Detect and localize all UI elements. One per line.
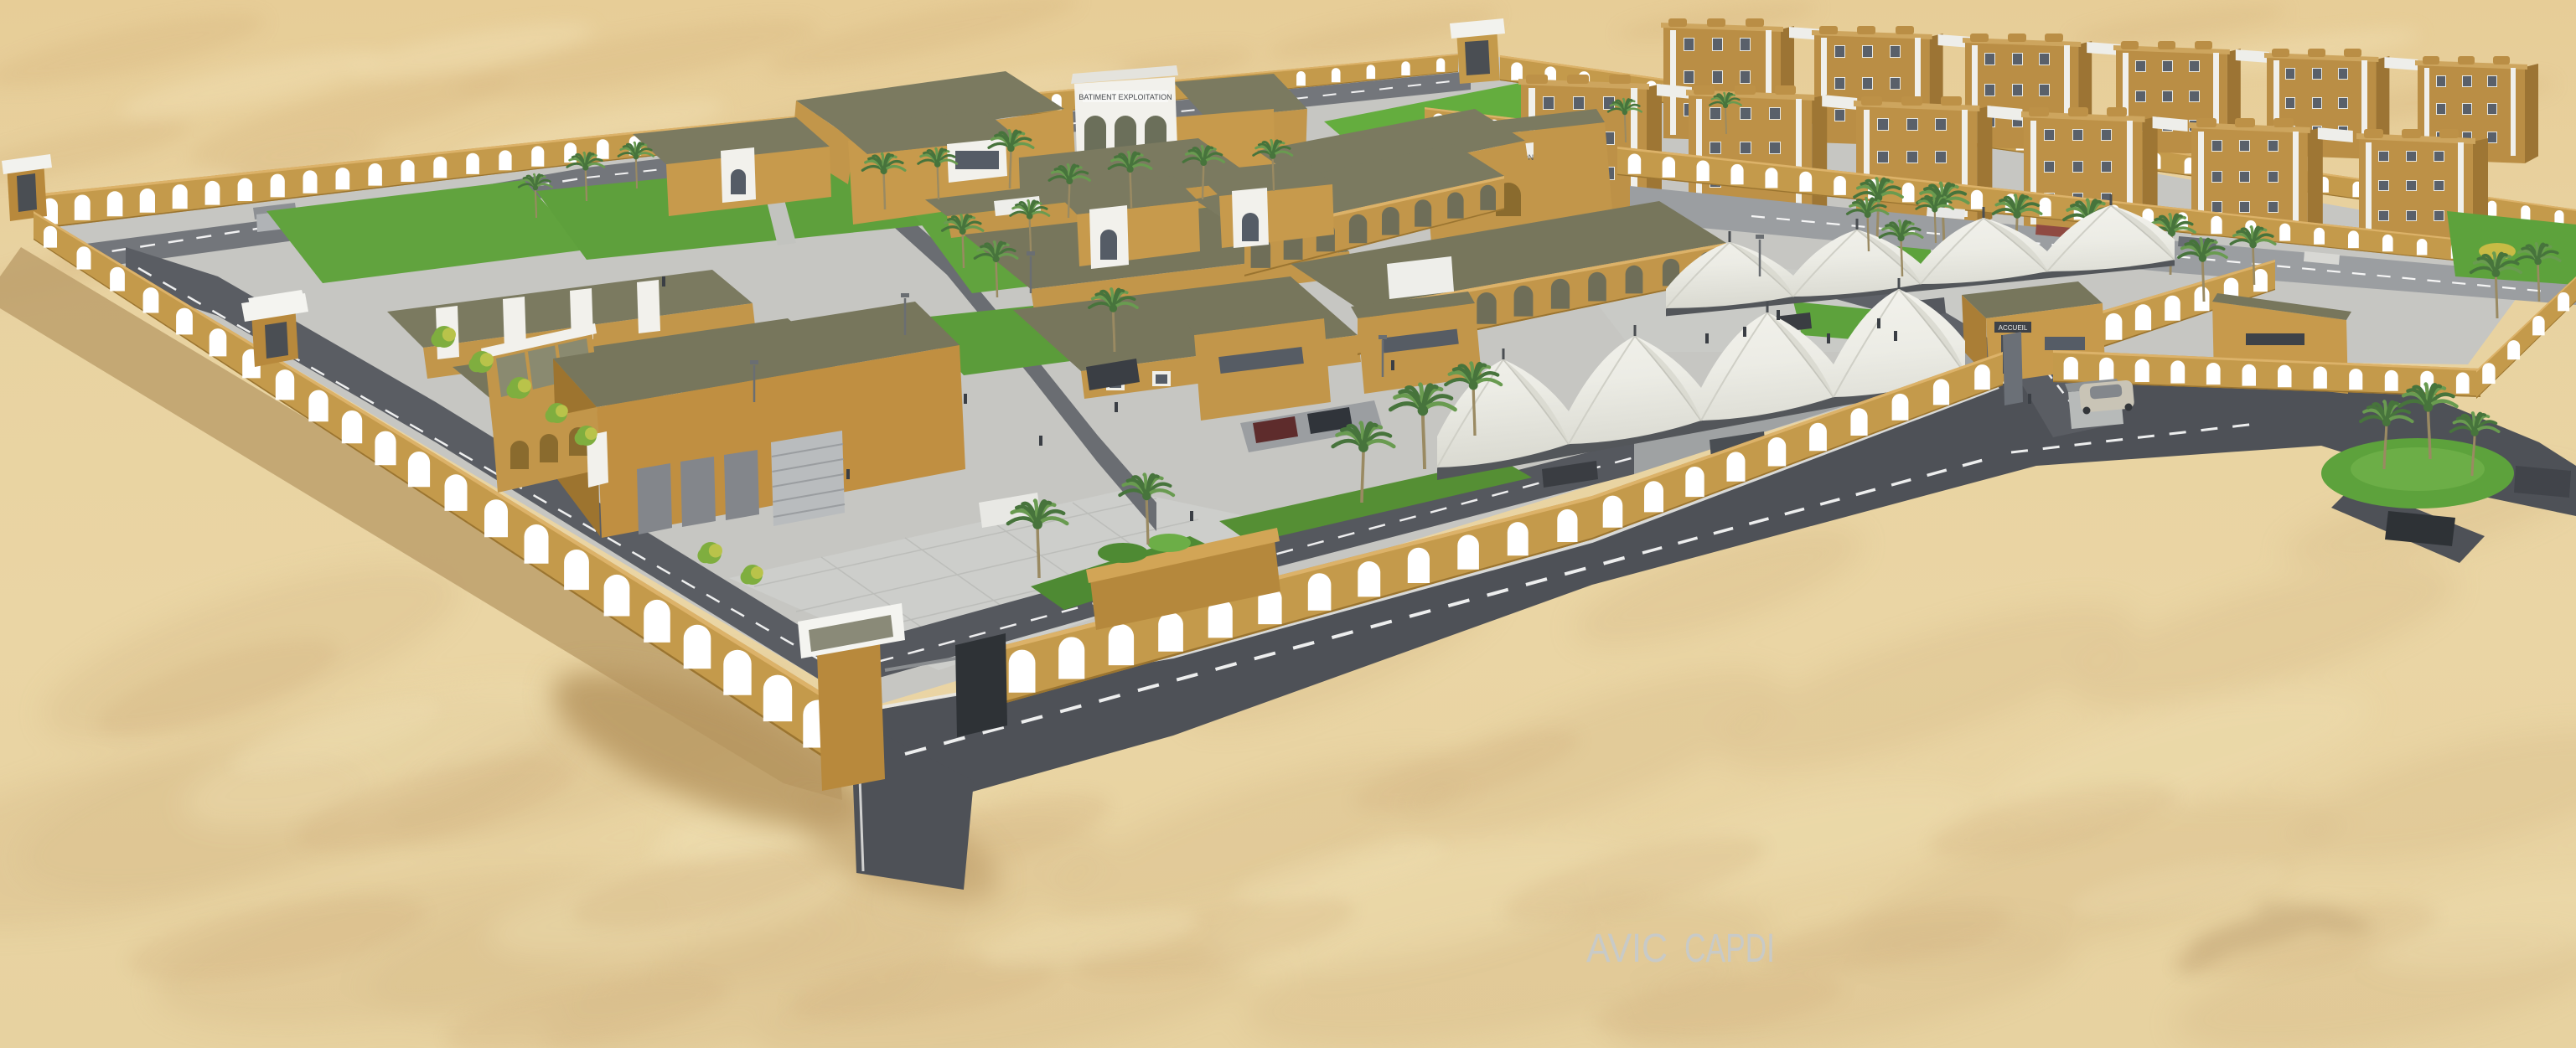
svg-text:CAPDI: CAPDI xyxy=(1684,927,1775,971)
svg-text:ACCUEIL: ACCUEIL xyxy=(1999,324,2028,332)
svg-text:AVIC: AVIC xyxy=(1586,927,1668,971)
svg-text:BATIMENT EXPLOITATION: BATIMENT EXPLOITATION xyxy=(1079,93,1172,101)
